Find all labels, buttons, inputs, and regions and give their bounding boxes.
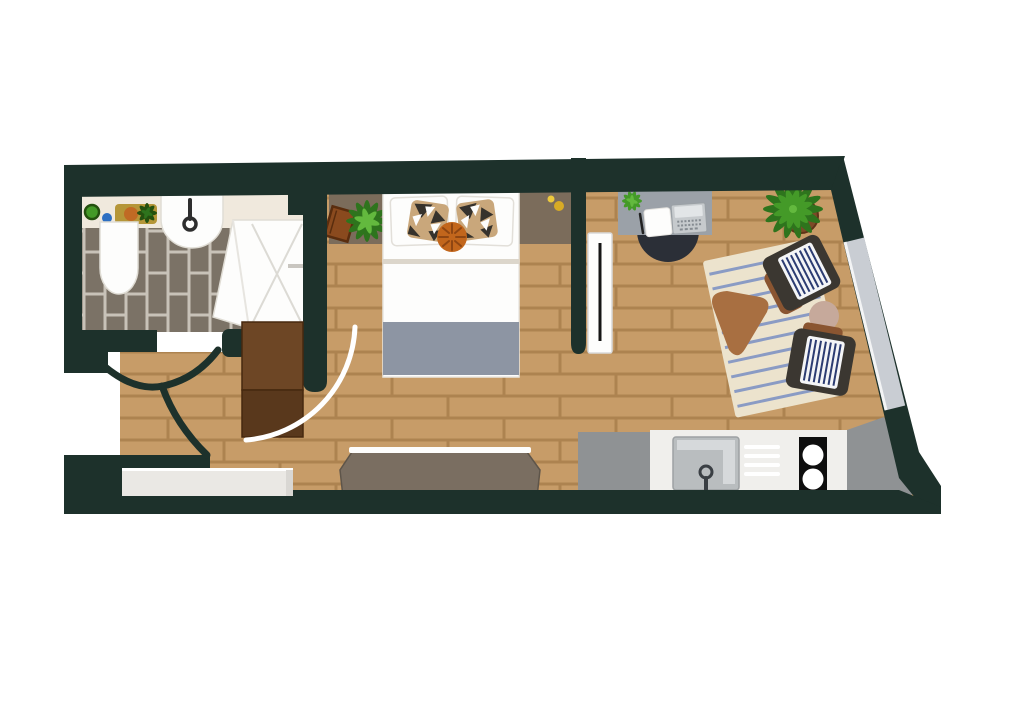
counter-gray-left (578, 432, 650, 497)
bedroom (324, 186, 571, 377)
headboard-shelf (329, 186, 571, 244)
kitchen-faucet-ring (700, 466, 712, 478)
book (324, 206, 355, 241)
wall-bathroom-bottom (64, 330, 157, 352)
doormat (122, 468, 293, 496)
wall-bottom (64, 455, 941, 514)
wall-partition (571, 158, 586, 354)
large-potted-plant (763, 179, 823, 240)
side-table (809, 301, 839, 331)
coffee-table (712, 291, 769, 355)
wall-door-knob-stub (222, 329, 247, 357)
pillow-left (390, 196, 449, 246)
bedside-plant-icon (346, 200, 388, 242)
shower-enclosure (213, 220, 305, 328)
patterned-cushion-left (406, 199, 449, 242)
living-area (588, 179, 858, 418)
kitchen (578, 417, 918, 497)
burner-bottom (803, 469, 824, 490)
wall-bathroom-corner (64, 330, 108, 373)
armchair-bottom (785, 320, 859, 397)
entry-door-swing-arc-white (246, 327, 355, 440)
storage-bench (340, 447, 540, 497)
workspace (618, 188, 712, 262)
bathroom (81, 195, 305, 332)
blue-cup (102, 213, 112, 223)
laptop-icon (671, 203, 707, 234)
soap-pot (85, 205, 99, 219)
wall-door-jamb (288, 185, 310, 215)
armchair-top (756, 232, 844, 316)
window (845, 240, 895, 410)
cooktop (799, 437, 827, 493)
basin-faucet-ring (184, 218, 196, 230)
bathroom-door-swing-arc-1 (104, 350, 218, 387)
toilet (100, 222, 138, 294)
striped-rug (703, 238, 846, 418)
radiator (588, 233, 612, 353)
desk (618, 188, 712, 235)
desk-plant-icon (622, 191, 642, 212)
bathroom-door-swing-arc-2 (162, 386, 207, 455)
wall-dot-big (554, 201, 564, 211)
wash-basin (161, 195, 223, 248)
plant-pot (784, 199, 818, 233)
wall-top (64, 156, 845, 197)
counter-gray-angled (847, 417, 918, 497)
window-inner-line (845, 242, 886, 410)
vanity-tray (115, 204, 157, 224)
desk-chair (637, 231, 699, 262)
counter-white (650, 430, 847, 497)
drying-rack (746, 447, 778, 474)
kitchen-sink (673, 437, 739, 490)
pen (640, 214, 643, 233)
wall-left (64, 165, 82, 355)
double-bed (383, 191, 519, 377)
entry-doors (104, 322, 355, 455)
gray-blanket (383, 322, 519, 375)
wall-dot-small (548, 196, 555, 203)
wall-bathroom-right (303, 185, 327, 392)
bathroom-tiled-floor (81, 195, 303, 332)
wall-right-angled (831, 156, 941, 510)
main-wood-floor (120, 181, 922, 497)
floor-plan-drawing: Studio apartment floor plan (top-down il… (0, 0, 1024, 723)
burner-top (803, 445, 824, 466)
tray-bowl (124, 207, 138, 221)
patterned-cushion-right (456, 199, 499, 242)
vanity-counter (81, 195, 303, 228)
walls (64, 156, 941, 514)
floor-plan-stage: Studio apartment floor plan (top-down il… (0, 0, 1024, 723)
tray-plant-icon (137, 203, 157, 223)
round-cushion-spokes (439, 224, 465, 250)
sheet-fold-line (383, 259, 519, 264)
sink-highlight (677, 440, 735, 484)
pillow-right (455, 196, 514, 246)
entry-door-open (242, 322, 303, 437)
notepad (644, 207, 673, 237)
round-orange-cushion (437, 222, 467, 252)
